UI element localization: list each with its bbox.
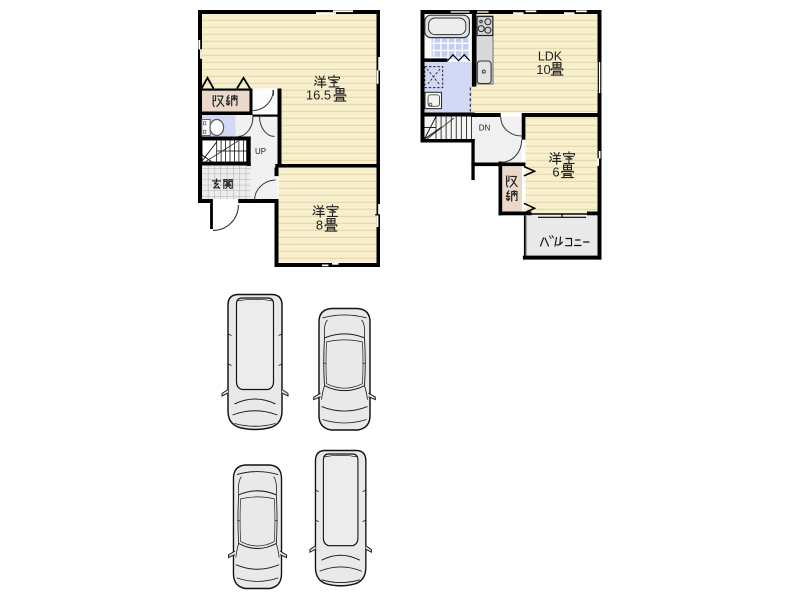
svg-text:6: 6 [552,165,559,180]
svg-text:16.5: 16.5 [306,88,331,103]
svg-text:UP: UP [255,147,266,156]
svg-text:8: 8 [316,218,323,233]
svg-text:10: 10 [536,62,550,77]
svg-text:DN: DN [479,124,491,133]
